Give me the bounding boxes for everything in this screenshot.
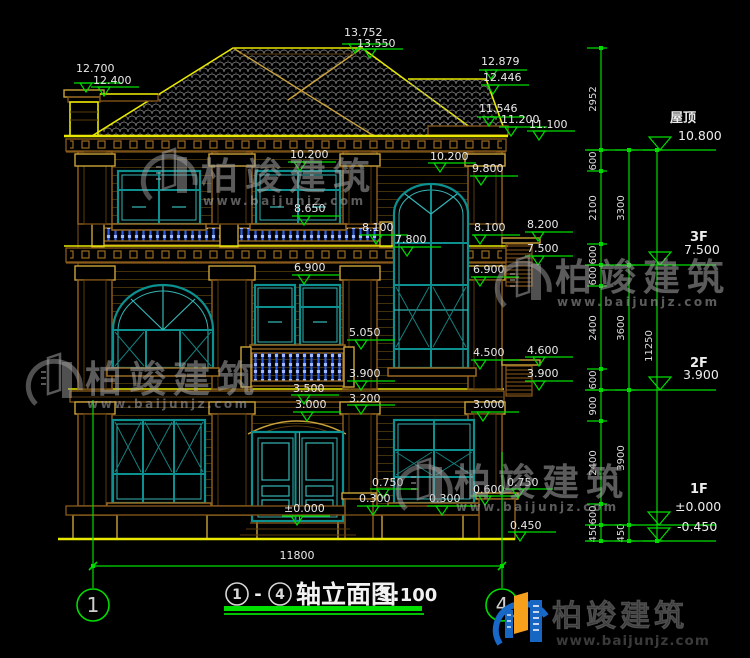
title-underline-thin	[224, 613, 424, 615]
roof	[64, 48, 508, 136]
chain-dimension: 450	[588, 523, 599, 542]
floor-value: 7.500	[684, 242, 720, 257]
chain-dimension: 3300	[616, 195, 627, 220]
watermark-url: www.baijunjz.com	[557, 295, 720, 309]
chain-dimension: 2400	[588, 315, 599, 340]
floor-mark-ground: -0.450	[648, 519, 717, 541]
chain-dimension: 2952	[588, 86, 599, 111]
watermark-brand: 柏竣建筑	[454, 461, 630, 504]
floor-mark-roof: 屋顶 10.800	[649, 111, 722, 150]
chimney	[64, 90, 104, 136]
title-axis-a: 1	[232, 587, 242, 603]
elevation-value: 8.100	[474, 221, 506, 234]
title-dash: -	[254, 584, 261, 605]
elevation-value: 8.200	[527, 218, 559, 231]
elevation-value: 4.500	[473, 346, 505, 359]
watermark-brand: 柏竣建筑	[555, 256, 731, 299]
drawing-title: 1 - 4 轴立面图 1:100	[224, 580, 437, 615]
cad-elevation-drawing: 12.70012.40013.75213.55012.87912.44611.5…	[0, 0, 750, 658]
elevation-value: 3.200	[349, 392, 381, 405]
floor-label: 屋顶	[670, 111, 696, 126]
title-underline-thick	[224, 606, 422, 611]
elevation-value: 13.550	[357, 37, 396, 50]
floor-value: 10.800	[678, 128, 722, 143]
title-axis-b: 4	[275, 587, 285, 603]
elevation-value: 3.900	[527, 367, 559, 380]
elevation-value: 3.000	[295, 398, 327, 411]
chain-dimension: 11250	[644, 330, 655, 362]
elevation-value: 12.446	[483, 71, 522, 84]
span-dimension: 11800	[280, 549, 315, 562]
elevation-value: 5.050	[349, 326, 381, 339]
watermark-brand: 柏竣建筑	[201, 155, 377, 198]
elevation-value: 3.500	[293, 382, 325, 395]
pilaster	[73, 152, 117, 539]
axis-number-left: 1	[87, 593, 100, 617]
brand-logo-url: www.baijunjz.com	[556, 633, 710, 649]
elevation-value: 11.100	[529, 118, 568, 131]
elevation-value: 10.200	[430, 150, 469, 163]
elevation-value: 12.879	[481, 55, 520, 68]
window-stair-arched	[388, 184, 476, 376]
floor-label: 1F	[690, 482, 708, 497]
watermark-url: www.baijunjz.com	[203, 194, 366, 208]
chain-dimension: 900	[588, 396, 599, 415]
elevation-value: 3.900	[349, 367, 381, 380]
elevation-value: 3.000	[473, 398, 505, 411]
dimension-chain: 11250	[643, 148, 663, 543]
watermark: 柏竣建筑 www.baijunjz.com	[28, 354, 261, 411]
elevation-value: 12.400	[93, 74, 132, 87]
watermark: 柏竣建筑 www.baijunjz.com	[497, 256, 731, 309]
elevation-value: 6.900	[294, 261, 326, 274]
chain-dimension: 600	[588, 370, 599, 389]
chain-dimension: 2100	[588, 195, 599, 220]
watermark-brand: 柏竣建筑	[85, 358, 261, 401]
elevation-value: 8.100	[362, 221, 394, 234]
floor-value: ±0.000	[675, 499, 721, 514]
brand-logo: 柏竣建筑 www.baijunjz.com	[496, 592, 710, 649]
watermark-url: www.baijunjz.com	[456, 500, 619, 514]
drawing-canvas: 12.70012.40013.75213.55012.87912.44611.5…	[0, 0, 750, 658]
elevation-mark: 11.100	[527, 118, 575, 140]
elevation-value: ±0.000	[284, 502, 325, 515]
chain-dimension: 600	[588, 151, 599, 170]
left-roof-ledge	[100, 94, 158, 101]
chain-dimension: 450	[616, 523, 627, 542]
elevation-value: 0.450	[510, 519, 542, 532]
elevation-value: 7.500	[527, 242, 559, 255]
floor-mark-2f: 2F 3.900	[649, 356, 719, 390]
chain-dimension: 3600	[616, 315, 627, 340]
elevation-value: 4.600	[527, 344, 559, 357]
title-scale: 1:100	[380, 585, 437, 606]
watermark-url: www.baijunjz.com	[87, 397, 250, 411]
floor-value: -0.450	[677, 519, 717, 534]
elevation-value: 0.300	[359, 492, 391, 505]
elevation-value: 7.800	[395, 233, 427, 246]
floor-value: 3.900	[683, 367, 719, 382]
right-eave-band	[428, 126, 508, 135]
elevation-value: 9.800	[472, 162, 504, 175]
brand-logo-text: 柏竣建筑	[552, 599, 688, 634]
window-1f-left	[107, 420, 211, 511]
